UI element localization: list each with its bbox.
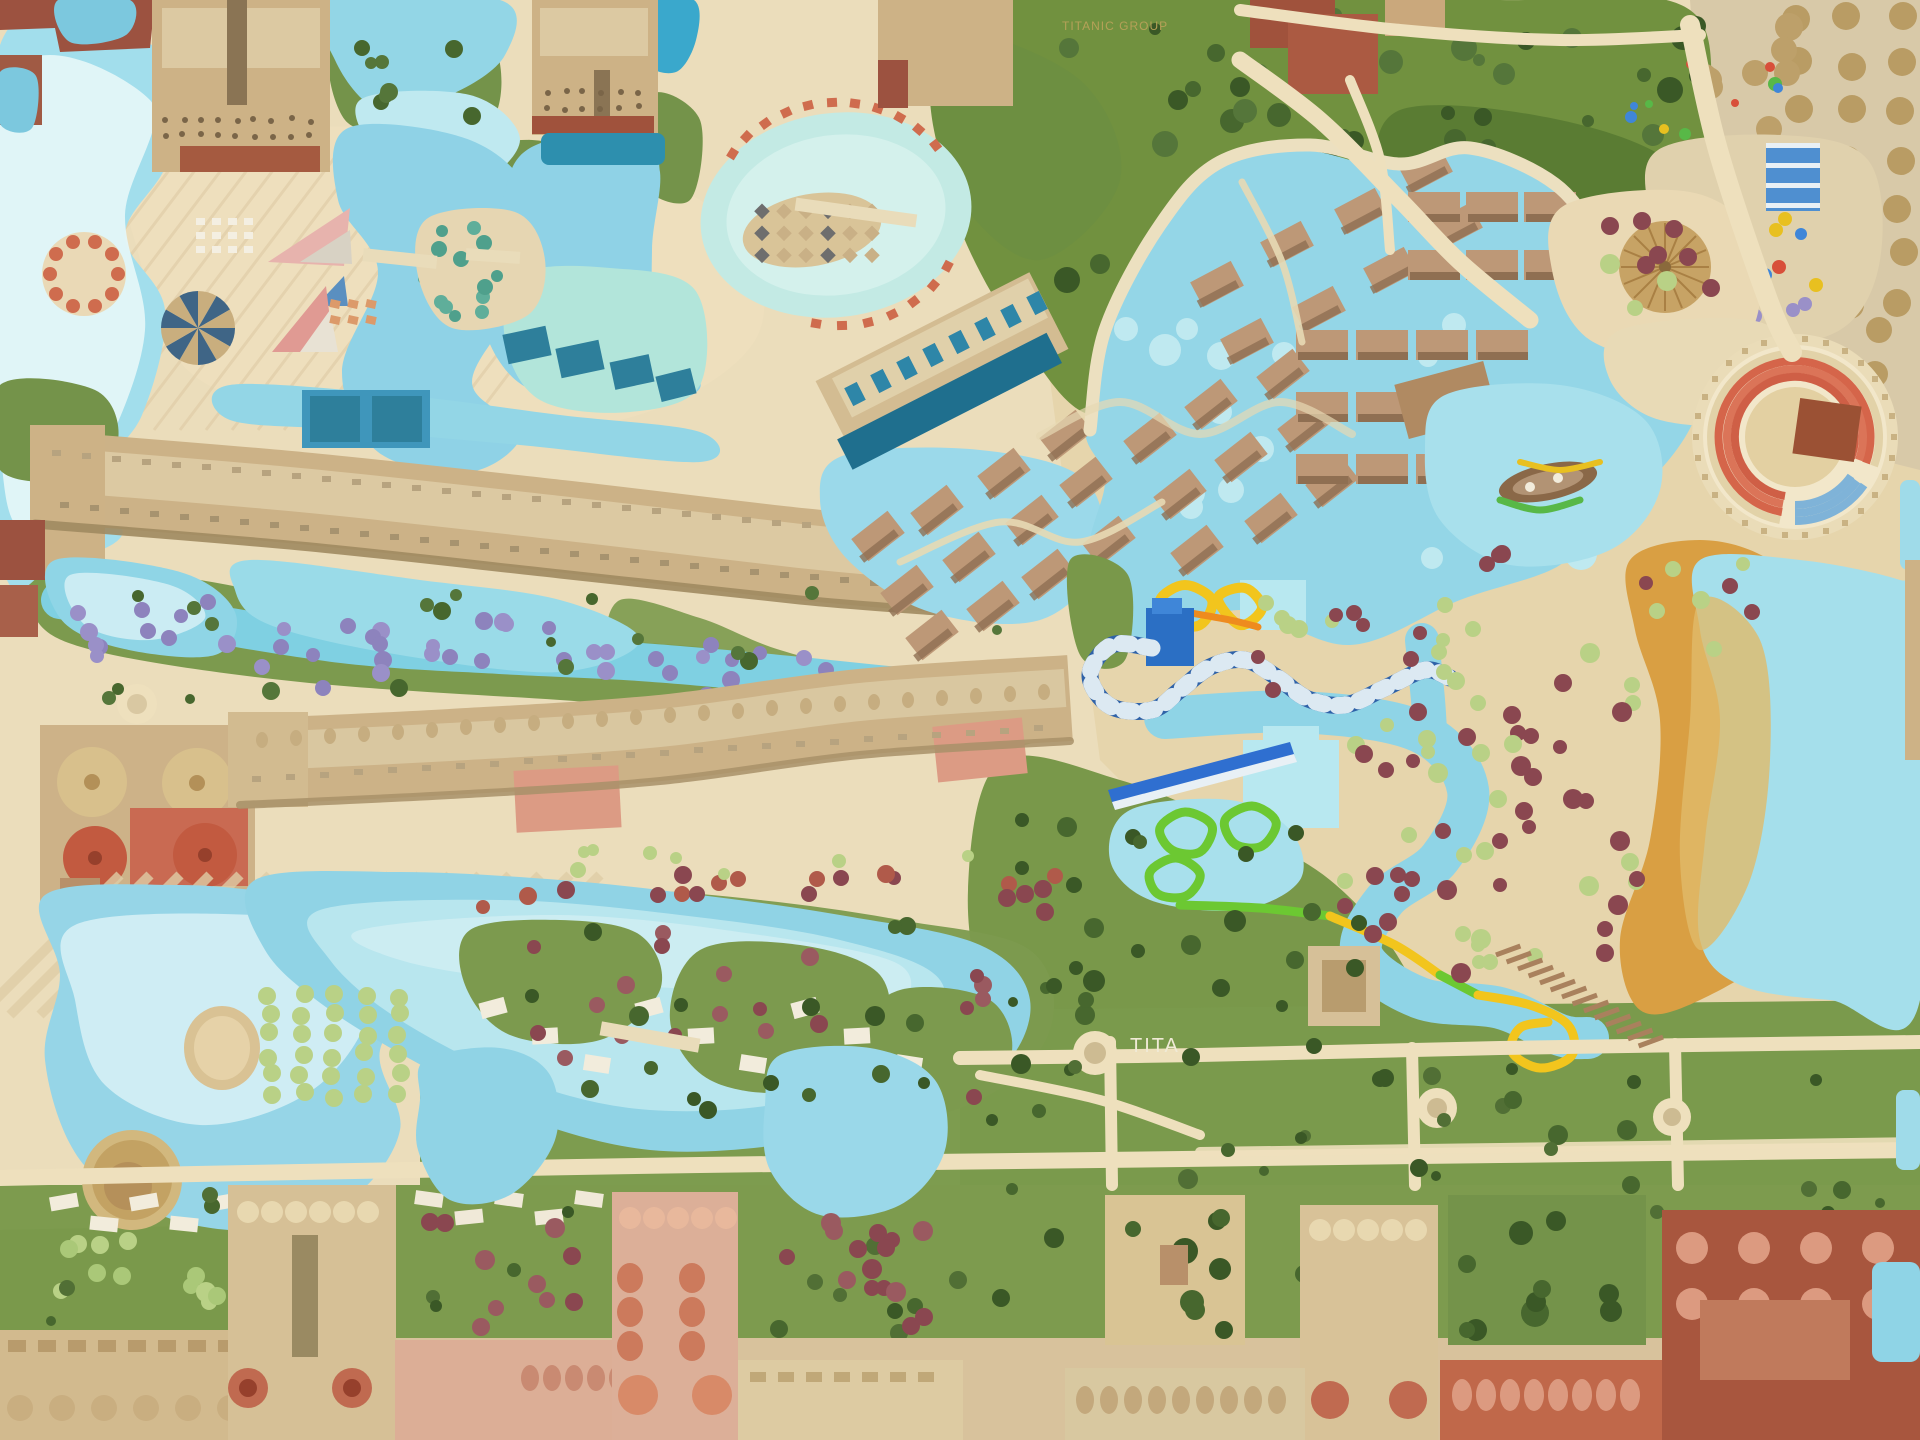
svg-text:TITANIC GROUP: TITANIC GROUP: [1062, 19, 1168, 33]
svg-text:TITA: TITA: [1130, 1035, 1180, 1057]
